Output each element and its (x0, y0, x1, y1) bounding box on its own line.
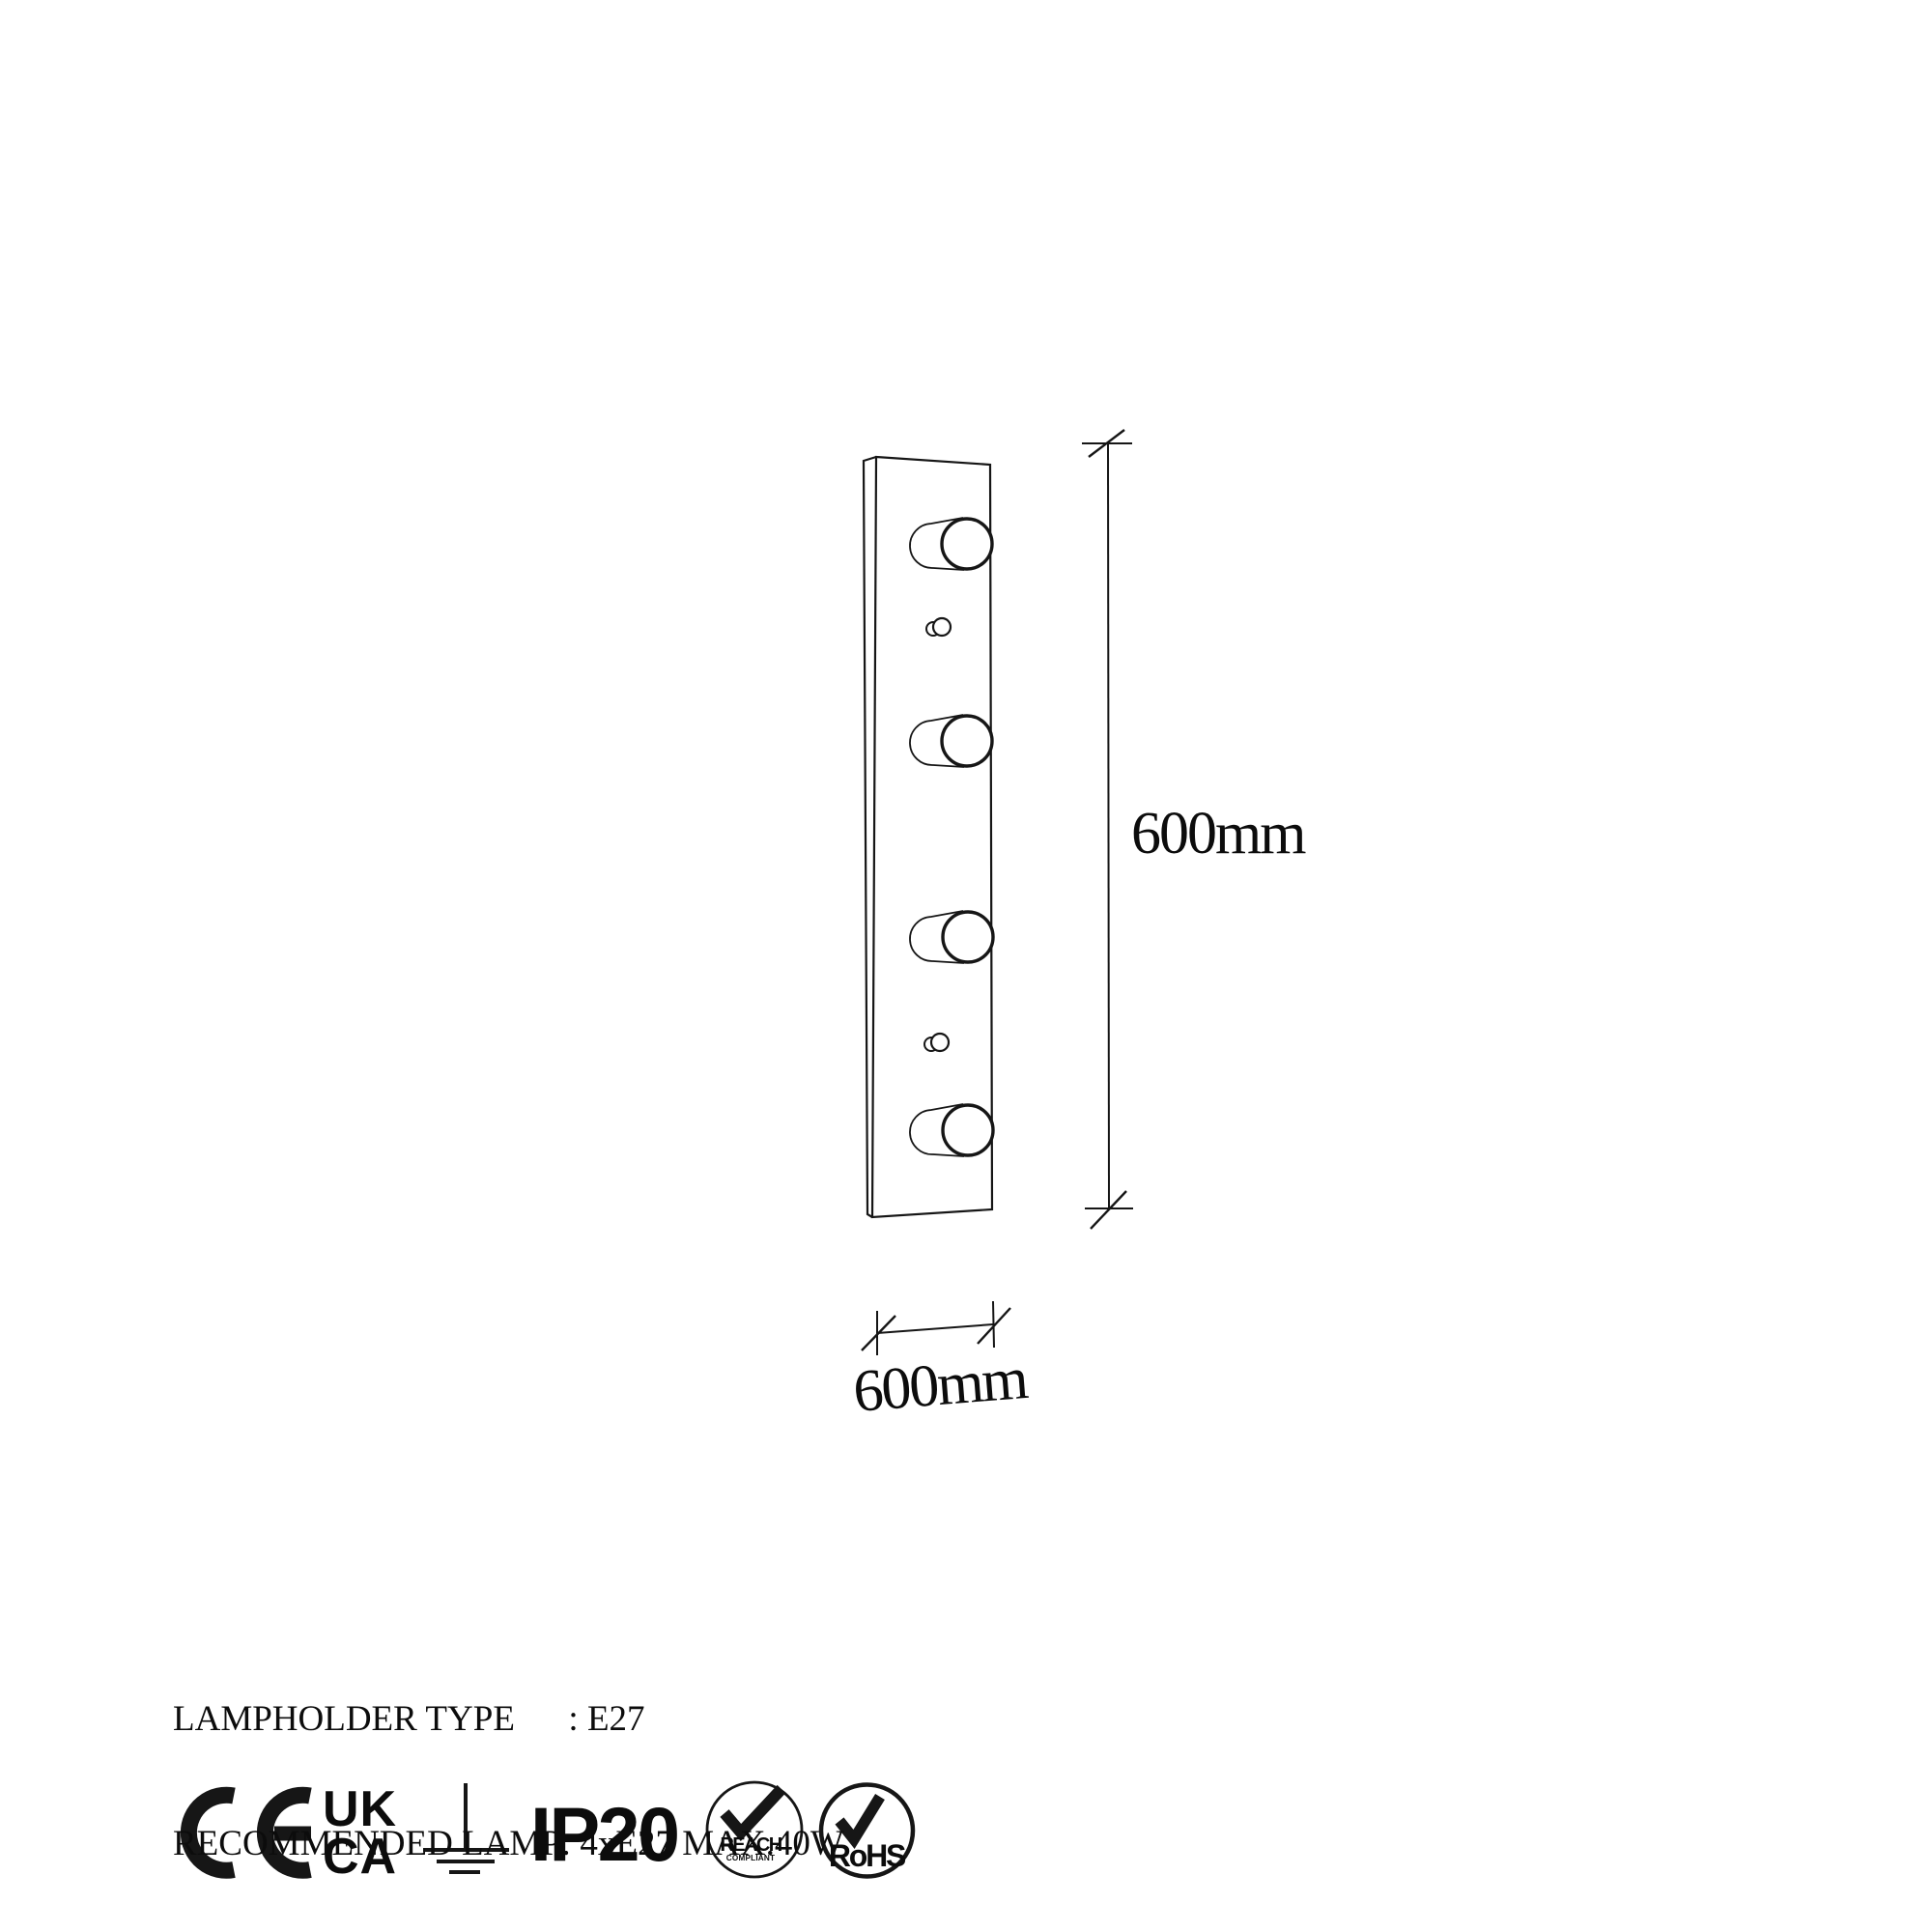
screw-front (931, 1034, 949, 1051)
lampholder-front (943, 912, 993, 962)
reach-badge-sublabel: COMPLIANT (702, 1854, 799, 1862)
ukca-line-ca: CA (323, 1833, 397, 1881)
rohs-badge-label: RoHS (818, 1840, 915, 1871)
screw-front (933, 618, 951, 636)
spec-line-lampholder-type: LAMPHOLDER TYPE : E27 (173, 1698, 844, 1740)
lampholder-drawing (910, 1104, 993, 1156)
fixture-front-face (872, 457, 992, 1217)
lampholder-front (942, 716, 992, 766)
technical-drawing-page: 600mm 600mm LAMPHOLDER TYPE : E27 RECOMM… (0, 0, 1932, 1932)
lampholder-front (942, 519, 992, 569)
screw-drawing (926, 618, 951, 636)
ukca-mark: UK CA (323, 1786, 397, 1880)
height-dimension-label: 600mm (1131, 804, 1304, 864)
lamp-fixture-drawing (864, 457, 993, 1217)
lampholder-drawing (910, 715, 992, 767)
height-dimension-line (1082, 430, 1133, 1229)
dim-tick-slash (862, 1316, 895, 1350)
lampholder-drawing (910, 518, 992, 570)
width-dimension-line (862, 1301, 1010, 1355)
ip-rating-label: IP20 (530, 1796, 678, 1872)
lampholder-front (943, 1105, 993, 1155)
screw-drawing (924, 1034, 949, 1051)
lampholder-drawing (910, 911, 993, 963)
width-dimension-label: 600mm (841, 1348, 1038, 1423)
ukca-line-uk: UK (323, 1786, 397, 1833)
spec-text-block: LAMPHOLDER TYPE : E27 RECOMMENDED LAMP: … (173, 1615, 844, 1932)
rohs-check-icon (839, 1797, 880, 1839)
reach-badge-label: REACH (702, 1835, 799, 1855)
